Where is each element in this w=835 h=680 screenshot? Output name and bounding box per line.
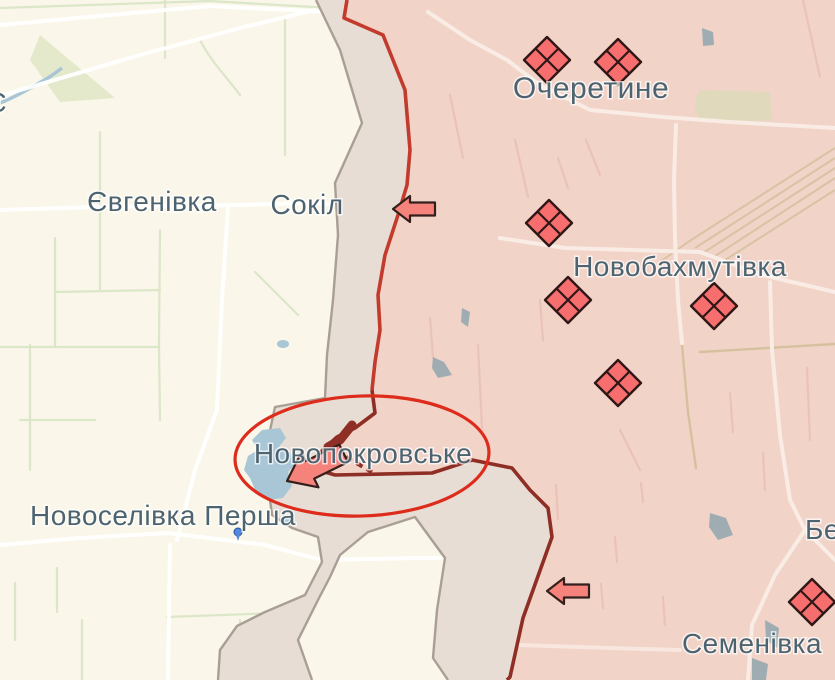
- place-label-clipped-left: Є: [0, 87, 7, 118]
- field-patch: [695, 90, 772, 122]
- place-label-sokil: Сокіл: [270, 189, 343, 220]
- place-label-ocheretyne: Очеретине: [513, 72, 669, 105]
- place-label-be-clipped-right: Бе: [805, 514, 835, 545]
- place-label-novoselivka-persha: Новоселівка Перша: [30, 500, 296, 531]
- place-label-novobakhmutivka: Новобахмутівка: [573, 251, 787, 282]
- war-map[interactable]: ОчеретинеНовобахмутівкаНовопокровськеЄвг…: [0, 0, 835, 680]
- place-label-yevhenivka: Євгенівка: [87, 186, 217, 217]
- place-label-semenivka: Семенівка: [682, 628, 822, 659]
- place-label-novopokrovske: Новопокровське: [254, 438, 472, 469]
- map-viewport[interactable]: ОчеретинеНовобахмутівкаНовопокровськеЄвг…: [0, 0, 835, 680]
